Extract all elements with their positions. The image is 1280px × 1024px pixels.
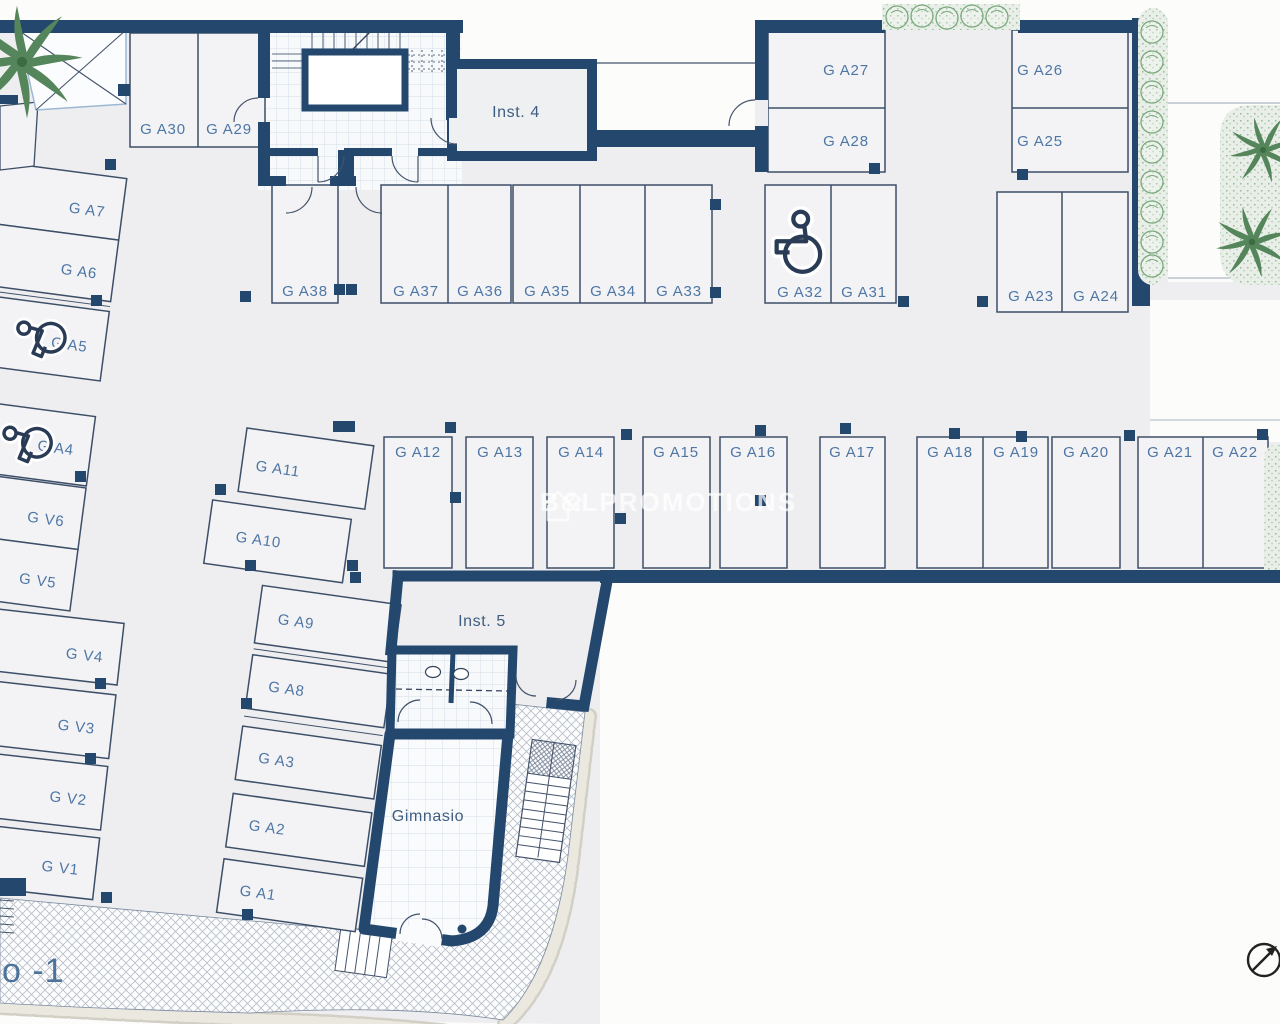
sink-icon <box>426 667 441 678</box>
door-gap <box>755 100 768 126</box>
parking-space-label: G A29 <box>206 121 252 138</box>
parking-space-label: G A33 <box>656 283 702 300</box>
planter-mound <box>1264 445 1280 570</box>
left-parking-column-lower: G V4 G V3 G V2 G V1 <box>0 607 124 900</box>
column-dot <box>458 925 467 934</box>
parking-space-label: G A18 <box>927 444 973 461</box>
parking-space-label: G A35 <box>524 283 570 300</box>
floor-label: o -1 <box>2 952 65 991</box>
parking-space-label: G A15 <box>653 444 699 461</box>
parking-space-label: G A37 <box>393 283 439 300</box>
parking-space-label: G A16 <box>730 444 776 461</box>
parking-space-label: G A36 <box>457 283 503 300</box>
parking-space-label: G A14 <box>558 444 604 461</box>
elevator <box>305 52 405 108</box>
left-parking-column-upper: G A7 G A6 G A5 G A4 G V6 G V5 <box>0 160 127 611</box>
parking-space-label: G A20 <box>1063 444 1109 461</box>
parking-space-label: G A13 <box>477 444 523 461</box>
parking-space-label: G A19 <box>993 444 1039 461</box>
sink-icon <box>454 669 469 680</box>
partial-parking-space <box>0 102 38 170</box>
parking-space-label: G A23 <box>1008 288 1054 305</box>
parking-space-label: G A24 <box>1073 288 1119 305</box>
parking-space-label: G A27 <box>823 62 869 79</box>
parking-space-label: G A32 <box>777 284 823 301</box>
parking-space-label: G A38 <box>282 283 328 300</box>
parking-space-label: G A31 <box>841 284 887 301</box>
parking-space-label: G A22 <box>1212 444 1258 461</box>
room-label-gym: Gimnasio <box>392 808 464 825</box>
parking-space-label: G A17 <box>829 444 875 461</box>
parking-space-label: G A26 <box>1017 62 1063 79</box>
parking-space-a27-a28 <box>768 30 885 172</box>
room-label-inst4: Inst. 4 <box>492 104 540 121</box>
parking-space-label: G A12 <box>395 444 441 461</box>
floor-plan-drawing: G A7 G A6 G A5 G A4 G V6 G V5 G V4 G V3 … <box>0 0 1280 1024</box>
parking-space-a26-a25 <box>1012 30 1128 172</box>
parking-space-label: G A30 <box>140 121 186 138</box>
floor-plan-canvas: G A7 G A6 G A5 G A4 G V6 G V5 G V4 G V3 … <box>0 0 1280 1024</box>
parking-space-label: G A34 <box>590 283 636 300</box>
inst5-doors <box>516 676 576 700</box>
parking-space-label: G A25 <box>1017 133 1063 150</box>
room-label-inst5: Inst. 5 <box>458 613 506 630</box>
parking-space-label: G A28 <box>823 133 869 150</box>
parking-space-label: G A21 <box>1147 444 1193 461</box>
